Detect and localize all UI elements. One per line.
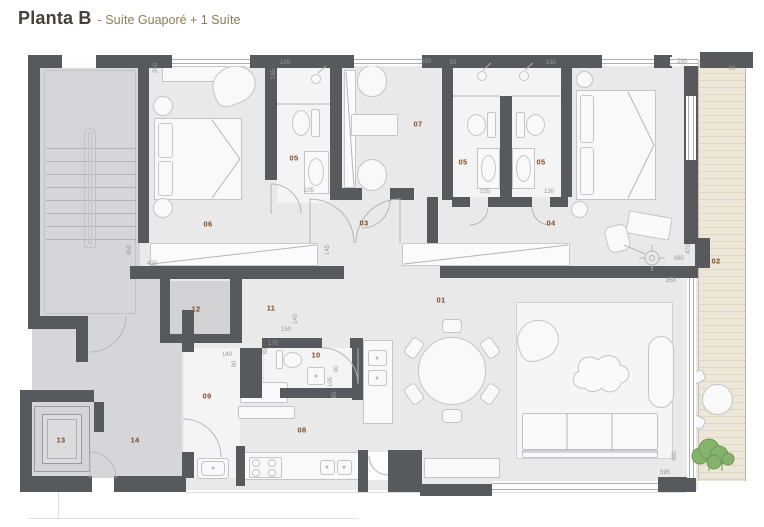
door-arc (183, 419, 221, 457)
room-number-label: 04 (547, 219, 556, 228)
floor-plan-canvas: Planta B- Suíte Guaporé + 1 Suíte 010203… (0, 0, 764, 527)
room-number-label: 05 (537, 158, 546, 167)
dimension-label: 105 (328, 377, 334, 387)
dimension-label: 260 (153, 63, 159, 73)
door-arc (310, 199, 354, 243)
dimension-label: 90 (729, 66, 736, 72)
room-number-label: 05 (459, 158, 468, 167)
dimension-label: 140 (222, 352, 232, 358)
dimension-label: 858 (666, 278, 676, 284)
dimension-label: 100 (280, 60, 290, 66)
room-number-label: 06 (204, 220, 213, 229)
room-number-label: 05 (290, 154, 299, 163)
sofa-cushion-lines (522, 413, 658, 452)
dimension-label: 145 (325, 245, 331, 255)
desk-chair-wheelbase (645, 251, 659, 265)
room-number-label: 03 (360, 219, 369, 228)
room-number-label: 02 (712, 257, 721, 266)
room-number-label: 14 (131, 436, 140, 445)
room-number-label: 11 (267, 304, 276, 313)
fixture-dots (212, 357, 379, 470)
room-number-label: 08 (298, 426, 307, 435)
dimension-label: 470 (686, 244, 692, 254)
dimension-label: 595 (660, 470, 670, 476)
dimension-label: 150 (281, 327, 291, 333)
dimension-label: 130 (544, 189, 554, 195)
dimension-label: 80 (232, 361, 238, 368)
dimension-label: 90 (334, 366, 340, 373)
dimension-label: 105 (304, 188, 314, 194)
desk-chair-wheelbase (650, 256, 655, 261)
dimension-label: 195 (271, 69, 277, 79)
plant (692, 439, 734, 471)
wardrobe-diagonal (152, 245, 316, 264)
door-arc (271, 184, 301, 214)
coffee-table-cloud (573, 356, 628, 392)
dimension-label: 250 (421, 59, 431, 65)
page-title: Planta B- Suíte Guaporé + 1 Suíte (18, 8, 240, 29)
wardrobe-diagonal (404, 245, 568, 264)
wardrobe-diagonal (346, 72, 354, 186)
dimension-label: 420 (147, 261, 157, 267)
room-number-label: 12 (192, 305, 201, 314)
door-arc (90, 316, 126, 352)
dimension-label: 480 (672, 451, 678, 461)
plan-annotations (0, 0, 764, 527)
room-number-label: 09 (203, 392, 212, 401)
plan-subtitle: - Suíte Guaporé + 1 Suíte (98, 13, 241, 27)
dimension-label: 170 (268, 341, 278, 347)
dimension-label: 290 (677, 59, 687, 65)
room-number-label: 01 (437, 296, 446, 305)
room-number-label: 13 (57, 436, 66, 445)
dimension-label: 685 (674, 256, 684, 262)
dimension-label: 130 (546, 60, 556, 66)
shower-divider-line (277, 96, 561, 104)
room-number-label: 07 (414, 120, 423, 129)
door-arc (90, 452, 116, 478)
door-arc (470, 207, 488, 225)
dimension-label: 105 (480, 189, 490, 195)
room-number-label: 10 (312, 351, 321, 360)
bed-fold (212, 120, 240, 198)
dimension-label: 85 (263, 348, 269, 355)
bed-fold (628, 92, 654, 198)
dimension-label: 450 (127, 245, 133, 255)
dimension-label: 85 (332, 392, 338, 399)
dimension-label: 85 (450, 60, 457, 66)
plan-title: Planta B (18, 8, 92, 28)
door-arc (369, 456, 388, 475)
dimension-label: 140 (293, 314, 299, 324)
